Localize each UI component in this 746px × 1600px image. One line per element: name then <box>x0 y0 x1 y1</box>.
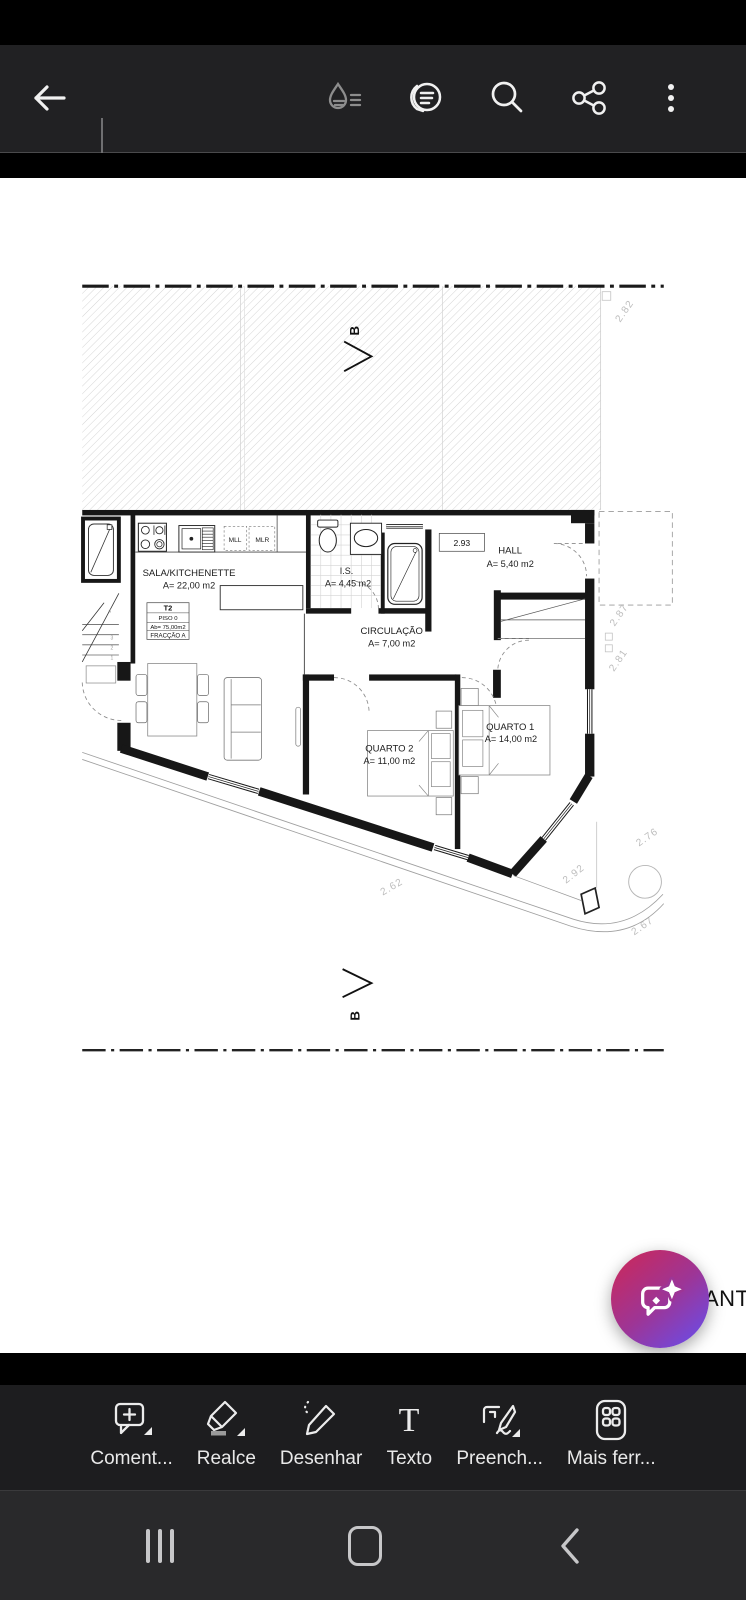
svg-text:FRACÇÃO A: FRACÇÃO A <box>150 632 186 639</box>
top-toolbar <box>0 45 746 153</box>
svg-text:2.87: 2.87 <box>608 602 631 628</box>
back-chevron-icon <box>558 1526 582 1566</box>
room-q2-name: QUARTO 2 <box>365 744 413 755</box>
more-options-button[interactable] <box>649 76 693 120</box>
page-gap-top <box>0 153 746 179</box>
home-button[interactable] <box>335 1521 395 1571</box>
back-button[interactable] <box>28 76 72 120</box>
label-mlr: MLR <box>255 537 269 544</box>
clipped-page-text: ANTA <box>704 1286 746 1312</box>
pdf-page[interactable]: B <box>0 178 746 1353</box>
view-settings-button[interactable] <box>403 76 447 120</box>
tool-highlight[interactable]: Realce <box>197 1397 256 1470</box>
share-icon <box>568 77 610 119</box>
room-is-name: I.S. <box>340 566 353 576</box>
terrace-dashed-outline <box>599 512 672 606</box>
annotation-toolbar: Coment... Realce Desenhar <box>0 1385 746 1490</box>
room-circ-name: CIRCULAÇÃO <box>361 626 423 637</box>
svg-text:4: 4 <box>108 609 111 615</box>
room-is-area: A= 4,45 m2 <box>325 578 371 588</box>
tool-text-label: Texto <box>387 1448 432 1470</box>
back-arrow-icon <box>30 78 70 118</box>
svg-text:2.76: 2.76 <box>634 826 660 849</box>
svg-text:2: 2 <box>110 645 113 651</box>
tool-draw[interactable]: Desenhar <box>280 1397 362 1470</box>
search-button[interactable] <box>485 76 529 120</box>
tool-comment-label: Coment... <box>90 1448 172 1470</box>
share-button[interactable] <box>567 76 611 120</box>
svg-text:2.82: 2.82 <box>614 298 637 324</box>
room-sala-area: A= 22,00 m2 <box>163 581 215 591</box>
svg-text:Ab= 75,00m2: Ab= 75,00m2 <box>150 625 185 631</box>
kitchen <box>135 515 306 674</box>
home-icon <box>348 1526 382 1566</box>
ink-tool-button[interactable] <box>321 76 365 120</box>
recents-icon <box>146 1529 174 1563</box>
recents-button[interactable] <box>130 1521 190 1571</box>
tool-more-tools[interactable]: Mais ferr... <box>567 1397 656 1470</box>
page-gap-bottom <box>0 1353 746 1386</box>
room-q2-area: A= 11,00 m2 <box>364 756 416 766</box>
ai-chat-sparkle-icon <box>634 1273 686 1325</box>
highlighter-icon <box>203 1397 249 1443</box>
wardrobe <box>501 599 585 639</box>
room-q1-name: QUARTO 1 <box>486 722 534 733</box>
svg-text:T: T <box>399 1402 420 1439</box>
room-circ-area: A= 7,00 m2 <box>368 638 415 648</box>
label-mll: MLL <box>229 537 242 544</box>
living-furniture <box>136 664 300 761</box>
bathroom-fixtures <box>318 520 422 604</box>
svg-text:1: 1 <box>110 656 113 662</box>
unit-info-box: T2 PISO 0 Ab= 75,00m2 FRACÇÃO A <box>147 603 189 640</box>
fill-sign-icon <box>477 1397 523 1443</box>
search-icon <box>486 77 528 119</box>
text-icon: T <box>386 1397 432 1443</box>
tool-draw-label: Desenhar <box>280 1448 362 1470</box>
svg-text:T2: T2 <box>164 604 173 613</box>
comment-icon <box>109 1397 155 1443</box>
screen: B <box>0 0 746 1600</box>
svg-text:2.81: 2.81 <box>607 647 630 673</box>
android-nav-bar <box>0 1490 746 1600</box>
view-settings-icon <box>404 77 446 119</box>
tool-comment[interactable]: Coment... <box>90 1397 172 1470</box>
floor-plan: B <box>0 280 746 1270</box>
level-ref: 2.93 <box>454 538 471 548</box>
hatched-slab <box>82 286 600 510</box>
svg-text:2.67: 2.67 <box>630 915 656 938</box>
tool-more-tools-label: Mais ferr... <box>567 1448 656 1470</box>
tool-fill-sign[interactable]: Preench... <box>456 1397 543 1470</box>
room-hall-area: A= 5,40 m2 <box>487 559 534 569</box>
section-marker-top: B <box>347 326 362 336</box>
room-hall-name: HALL <box>498 546 522 557</box>
room-sala-name: SALA/KITCHENETTE <box>143 568 236 579</box>
ink-drop-icon <box>322 77 364 119</box>
ai-assistant-fab[interactable] <box>611 1250 709 1348</box>
svg-text:PISO 0: PISO 0 <box>158 616 178 622</box>
tool-fill-sign-label: Preench... <box>456 1448 543 1470</box>
section-marker-bottom: B <box>348 1011 363 1021</box>
tool-highlight-label: Realce <box>197 1448 256 1470</box>
tool-text[interactable]: T Texto <box>386 1397 432 1470</box>
room-q1-area: A= 14,00 m2 <box>485 734 537 744</box>
status-bar <box>0 0 746 45</box>
site-pillar <box>581 888 599 914</box>
svg-text:2.62: 2.62 <box>379 877 406 899</box>
elevator <box>83 519 119 581</box>
site-column <box>629 865 662 898</box>
svg-text:3: 3 <box>110 635 113 641</box>
stairs: 4 3 2 1 <box>82 593 119 683</box>
more-tools-grid-icon <box>588 1397 634 1443</box>
kebab-menu-icon <box>650 77 692 119</box>
svg-text:2.92: 2.92 <box>561 863 587 887</box>
pencil-draw-icon <box>298 1397 344 1443</box>
back-nav-button[interactable] <box>540 1521 600 1571</box>
